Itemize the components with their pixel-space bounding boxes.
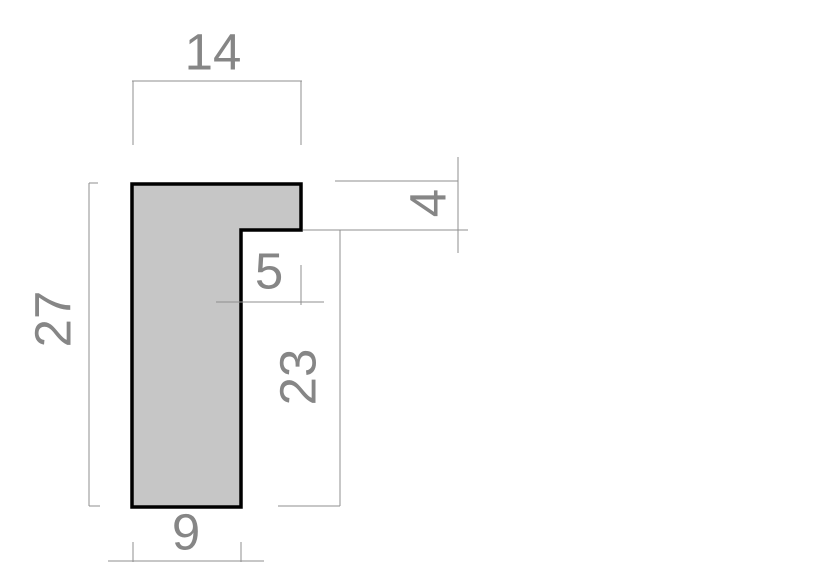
dim-overall-height-value: 27 xyxy=(25,291,82,348)
technical-drawing-svg: 14 27 4 5 23 9 xyxy=(0,0,819,587)
profile-shape xyxy=(132,184,301,507)
dim-top-width-value: 14 xyxy=(185,24,242,81)
dim-bottom-width-value: 9 xyxy=(172,504,200,561)
dim-rabbet-height-value: 4 xyxy=(400,189,457,217)
dim-rabbet-width-value: 5 xyxy=(255,243,283,300)
dim-lower-height-value: 23 xyxy=(270,349,327,406)
drawing-canvas: 14 27 4 5 23 9 xyxy=(0,0,819,587)
